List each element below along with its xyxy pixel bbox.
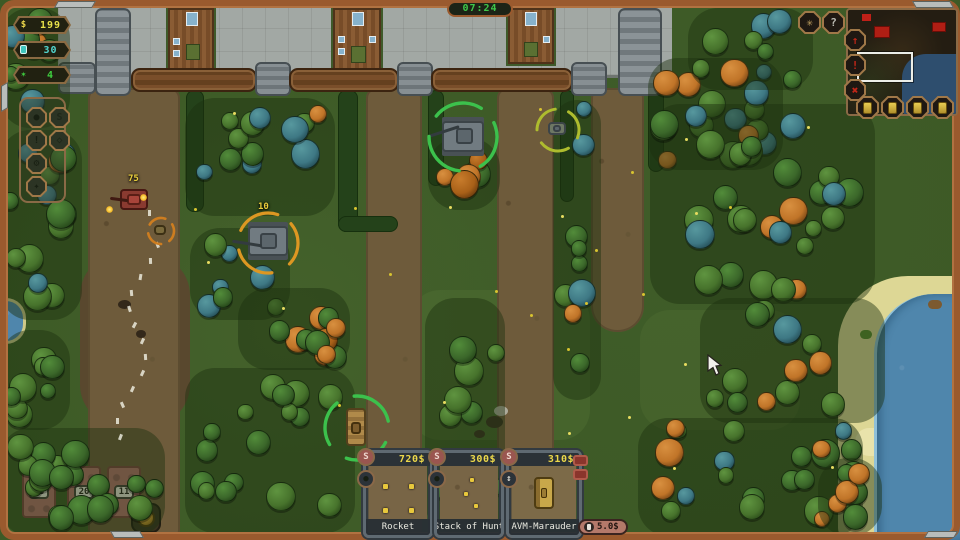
tree: [127, 475, 145, 493]
card-name: AVM-Marauder: [509, 519, 579, 535]
game-screen: 20 20 11 75: [0, 0, 960, 540]
muzzle-flash: [106, 206, 113, 213]
squad-button-2[interactable]: [881, 96, 904, 119]
tree: [661, 501, 681, 521]
squad-button-1[interactable]: [856, 96, 879, 119]
ability-button-5[interactable]: ⚙: [26, 153, 47, 174]
frame-corner-tab: [924, 531, 958, 538]
tree: [127, 495, 153, 521]
tree: [487, 344, 505, 362]
money-value: 199: [32, 20, 69, 31]
tree: [281, 116, 308, 143]
supply-icon: S: [51, 109, 68, 126]
queue-slot[interactable]: [573, 455, 588, 466]
frame-corner-tab: [110, 531, 144, 538]
tree: [805, 220, 822, 237]
tree: [843, 504, 868, 529]
tree: [773, 315, 802, 344]
star-counter: ✶ 4: [13, 66, 71, 84]
squad-icon: [863, 102, 872, 114]
wooden-building: [333, 8, 381, 72]
tree: [650, 110, 679, 139]
queue-slot[interactable]: [573, 469, 588, 480]
help-button[interactable]: ?: [822, 11, 845, 34]
question-icon: ?: [824, 13, 843, 32]
tree: [727, 392, 748, 413]
tree: [572, 134, 595, 157]
tree: [250, 265, 275, 290]
squad-icon: [913, 102, 922, 114]
tree: [809, 351, 832, 374]
tree: [564, 304, 583, 323]
tree: [769, 221, 791, 243]
star-icon: ✶: [15, 71, 32, 80]
tree: [739, 494, 765, 520]
tree: [196, 164, 212, 180]
tree: [317, 493, 342, 518]
tree: [741, 136, 762, 157]
tree: [40, 355, 65, 380]
tree: [1, 192, 19, 210]
player-tank[interactable]: [438, 112, 488, 160]
card-preview: [440, 466, 498, 519]
tree: [791, 446, 812, 467]
tree: [49, 465, 73, 489]
flower: [595, 249, 598, 252]
gear-icon: ⚙: [28, 155, 45, 172]
tree: [773, 158, 802, 187]
card-name: Rocket: [366, 519, 430, 535]
card-mode-button[interactable]: S: [500, 448, 518, 466]
card-mode-button[interactable]: S: [357, 448, 375, 466]
tree: [775, 380, 800, 405]
tree: [213, 287, 234, 308]
tree: [848, 463, 870, 485]
tree: [198, 482, 216, 500]
tree: [694, 265, 723, 294]
frame-corner-tab: [54, 1, 96, 8]
tree: [215, 481, 236, 502]
tree: [317, 345, 336, 364]
hedge: [338, 90, 358, 232]
tree: [87, 495, 114, 522]
flower: [628, 416, 631, 419]
card-mode-button[interactable]: S: [428, 448, 446, 466]
card-preview: [512, 466, 576, 519]
artillery-unit[interactable]: [344, 406, 370, 448]
minimap-enemy-base: [862, 14, 871, 21]
hourglass-icon: [584, 522, 594, 532]
tree: [822, 182, 846, 206]
enemy-tank[interactable]: [118, 186, 152, 214]
metal-pillar: [397, 62, 433, 96]
tree: [272, 384, 295, 407]
shop-card-avm-marauder[interactable]: 310$ AVM-Marauder S ↕: [506, 450, 582, 538]
alert-icon: !: [846, 56, 864, 74]
tree: [757, 392, 776, 411]
tree: [237, 404, 253, 420]
tree: [571, 240, 588, 257]
squad-icon: [938, 102, 947, 114]
frame-corner-tab: [912, 1, 954, 8]
shop-card-rocket[interactable]: 720$ Rocket S ●: [363, 450, 433, 538]
ability-button-1[interactable]: ●: [26, 107, 47, 128]
tree: [784, 359, 807, 382]
tree: [653, 70, 679, 96]
wooden-gate: [289, 68, 399, 92]
wooden-building: [168, 8, 214, 70]
tank-preview: [534, 477, 554, 509]
alert-icon: !: [28, 132, 45, 149]
tree: [794, 469, 815, 490]
fuel-counter: 30: [13, 41, 71, 59]
tree: [812, 440, 831, 459]
rate-value: 5.0$: [597, 522, 619, 532]
flower: [729, 206, 732, 209]
track-mark: [116, 418, 119, 424]
minimap-enemy-base: [874, 26, 890, 38]
tree: [702, 28, 729, 55]
squad-count-label: 10: [258, 202, 269, 212]
tree: [291, 139, 320, 168]
metal-column: [95, 8, 131, 96]
tree: [821, 392, 846, 417]
tree: [723, 420, 745, 442]
tree: [706, 389, 724, 407]
frame-corner-tab: [1, 82, 8, 112]
card-name: Stack of Hunt: [437, 519, 501, 535]
tree: [696, 130, 725, 159]
flower: [338, 404, 341, 407]
card-drop-button[interactable]: ●: [428, 470, 446, 488]
squad-button-4[interactable]: [931, 96, 954, 119]
flower: [539, 108, 542, 111]
net-icon: ✳: [800, 13, 819, 32]
flower: [530, 314, 533, 317]
minimap-enemy-base: [932, 22, 946, 32]
tree: [780, 113, 806, 139]
drop-icon: ●: [28, 109, 45, 126]
wooden-gate: [431, 68, 573, 92]
wooden-gate: [131, 68, 257, 92]
scout-unit[interactable]: [547, 120, 569, 138]
card-drop-button[interactable]: ●: [357, 470, 375, 488]
small-unit[interactable]: [153, 224, 169, 238]
metal-pillar: [571, 62, 607, 96]
tree: [269, 320, 291, 342]
tree: [655, 438, 683, 466]
star-value: 4: [32, 70, 69, 81]
tree: [722, 368, 748, 394]
tree: [718, 467, 735, 484]
player-tank[interactable]: [244, 218, 292, 264]
metal-pillar: [255, 62, 291, 96]
flower: [695, 212, 698, 215]
flower: [631, 171, 634, 174]
tree: [733, 208, 757, 232]
tree: [576, 101, 592, 117]
ability-button-4[interactable]: ◇: [49, 130, 70, 151]
flower: [585, 302, 588, 305]
tree: [444, 386, 472, 414]
tree: [570, 353, 590, 373]
diamond-icon: ◇: [51, 132, 68, 149]
tree: [204, 233, 227, 256]
price-label: 720$: [399, 454, 425, 465]
dollar-icon: $: [15, 21, 32, 30]
tree: [783, 70, 803, 90]
flower: [642, 293, 645, 296]
squad-icon: [888, 102, 897, 114]
ability-button-2[interactable]: S: [49, 107, 70, 128]
tree: [2, 387, 21, 406]
ability-button-3[interactable]: !: [26, 130, 47, 151]
shop-card-stack-of-hunt[interactable]: 300$ Stack of Hunt S ●: [434, 450, 504, 538]
minimap-alert-button[interactable]: !: [844, 54, 866, 76]
card-preview: [369, 466, 427, 519]
hedge: [338, 216, 398, 232]
enemy-hp-label: 75: [128, 174, 139, 184]
fuel-value: 30: [32, 45, 69, 56]
money-counter: $ 199: [13, 16, 71, 34]
tree: [677, 487, 695, 505]
cancel-icon: ✖: [846, 81, 864, 99]
price-label: 300$: [470, 454, 496, 465]
crater: [136, 330, 146, 338]
up-arrow-icon: ↑: [846, 31, 864, 49]
tree: [145, 479, 164, 498]
sea-water: [874, 294, 960, 540]
card-updown-button[interactable]: ↕: [500, 470, 518, 488]
flower: [685, 138, 688, 141]
flower: [673, 467, 676, 470]
wooden-building: [508, 8, 554, 64]
squad-button-3[interactable]: [906, 96, 929, 119]
tree: [835, 422, 853, 440]
match-timer: 07:24: [447, 1, 513, 17]
tree: [61, 440, 90, 469]
bomb-icon: ●: [434, 474, 439, 484]
flower: [194, 208, 197, 211]
tree: [685, 105, 707, 127]
tree: [7, 434, 33, 460]
tree: [449, 336, 477, 364]
minimap-up-button[interactable]: ↑: [844, 29, 866, 51]
tree: [49, 505, 75, 531]
price-label: 310$: [548, 454, 574, 465]
muzzle-flash: [140, 194, 147, 201]
network-button[interactable]: ✳: [798, 11, 821, 34]
spark-icon: ✦: [28, 178, 45, 195]
ability-button-6[interactable]: ✦: [26, 176, 47, 197]
driftwood: [928, 300, 942, 309]
bomb-icon: ●: [363, 474, 368, 484]
fuel-icon: [15, 44, 32, 57]
flower: [831, 466, 834, 469]
tree: [196, 439, 219, 462]
rate-indicator: 5.0$: [578, 519, 628, 535]
tree: [203, 423, 220, 440]
